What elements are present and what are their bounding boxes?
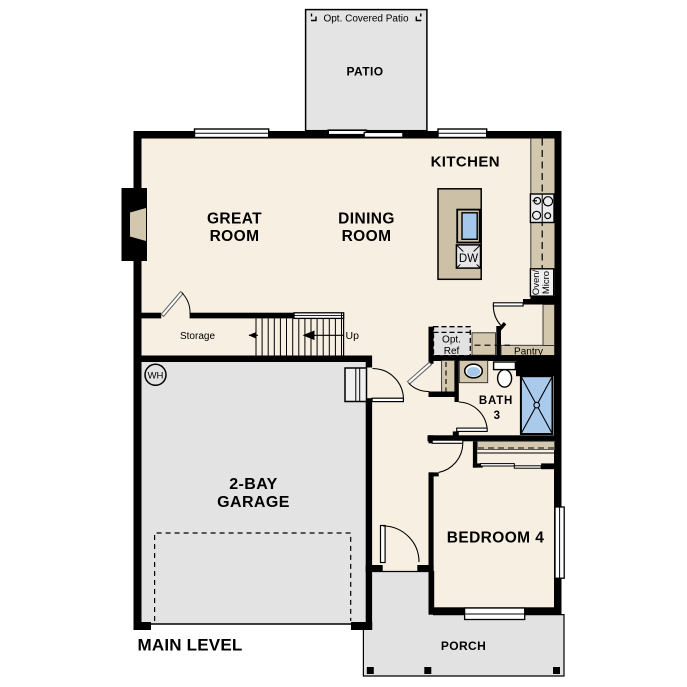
svg-text:3: 3 [494, 410, 501, 422]
svg-text:Storage: Storage [180, 331, 215, 342]
svg-text:GREAT: GREAT [207, 211, 262, 228]
svg-text:ROOM: ROOM [342, 228, 392, 245]
svg-text:PATIO: PATIO [347, 65, 384, 79]
svg-text:DINING: DINING [338, 211, 395, 228]
svg-text:BEDROOM 4: BEDROOM 4 [447, 530, 544, 547]
svg-text:GARAGE: GARAGE [217, 494, 290, 511]
svg-text:Micro: Micro [541, 271, 552, 294]
svg-text:PORCH: PORCH [441, 639, 486, 653]
svg-text:WH: WH [148, 370, 164, 381]
svg-text:BATH: BATH [479, 395, 513, 407]
svg-text:MAIN LEVEL: MAIN LEVEL [138, 636, 243, 655]
svg-text:2-BAY: 2-BAY [229, 476, 278, 493]
svg-text:Opt.: Opt. [442, 335, 461, 346]
svg-text:Opt. Covered Patio: Opt. Covered Patio [323, 13, 408, 24]
svg-text:DW: DW [459, 253, 478, 265]
svg-text:KITCHEN: KITCHEN [431, 154, 500, 171]
svg-text:Up: Up [346, 330, 360, 342]
svg-text:ROOM: ROOM [210, 228, 260, 245]
